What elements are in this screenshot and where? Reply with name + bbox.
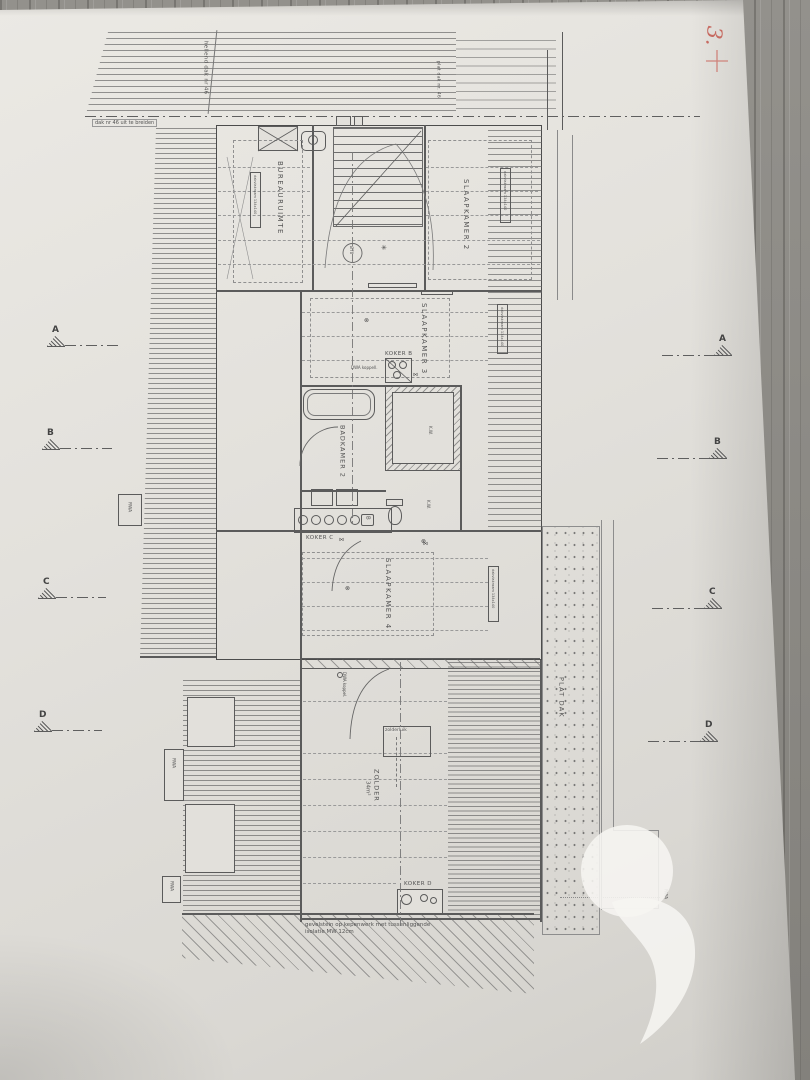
red-handwritten-cross	[706, 50, 728, 72]
roof-curve	[396, 144, 433, 270]
watermark-logo-comma	[612, 898, 695, 1044]
roof-curve	[325, 144, 396, 268]
roof-slope-cross	[227, 157, 253, 279]
photo-floor-plan: hellend dak nr 46 plat dak nr. 46 dak nr…	[0, 0, 810, 1080]
koker-b-cross	[386, 359, 411, 382]
door-arc-bedroom4	[332, 541, 361, 591]
drawing-overlay	[0, 0, 810, 1080]
shaft-cross	[258, 127, 298, 151]
door-arc-attic	[350, 669, 389, 739]
paper-sheet: hellend dak nr 46 plat dak nr. 46 dak nr…	[0, 0, 810, 1080]
stair-diagonal	[336, 131, 421, 226]
red-handwritten-number: 3.	[701, 25, 727, 47]
door-arc-bathroom	[300, 427, 338, 466]
